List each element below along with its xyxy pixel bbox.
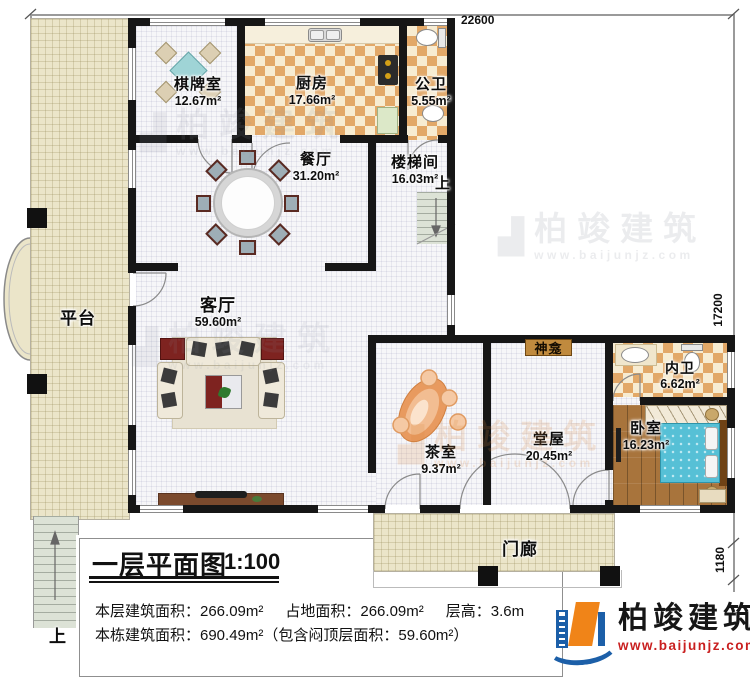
window	[265, 18, 360, 26]
wall	[232, 135, 252, 143]
room-label-platform: 平台	[60, 309, 96, 328]
inner-toilet-tank	[681, 344, 703, 351]
bedroom-tv	[616, 428, 621, 462]
wall	[128, 135, 198, 143]
cushion	[263, 392, 279, 408]
wall	[340, 135, 408, 143]
kitchen-sink	[308, 28, 342, 42]
burner	[385, 60, 391, 66]
room-label-bedroom: 卧室 16.23m²	[623, 421, 670, 452]
drawing-scale: 1:100	[224, 549, 280, 575]
bed-pillow	[705, 427, 718, 450]
toilet	[416, 29, 438, 46]
column	[600, 566, 620, 586]
room-label-public-bath: 公卫 5.55m²	[411, 77, 451, 108]
dining-chair	[239, 240, 256, 255]
wall	[325, 263, 376, 271]
floor-height: 层高：3.6m	[446, 600, 524, 621]
room-label-chess: 棋牌室 12.67m²	[174, 77, 222, 108]
room-label-porch: 门廊	[502, 540, 538, 559]
wall	[420, 505, 460, 513]
sofa-left	[157, 362, 183, 419]
total-area: 本栋建筑面积：690.49m²（包含闷顶层面积：59.60m²）	[95, 624, 468, 645]
toilet-tank	[438, 28, 446, 48]
wall	[368, 143, 376, 263]
window	[128, 345, 136, 425]
cushion	[161, 368, 178, 385]
column	[27, 208, 47, 228]
company-logo: 柏竣建筑 www.baijunjz.com	[548, 596, 750, 660]
refrigerator	[377, 107, 398, 134]
window	[727, 428, 735, 478]
kitchen-stove	[378, 55, 398, 85]
company-logo-text: 柏竣建筑 www.baijunjz.com	[618, 604, 750, 653]
floor-area: 本层建筑面积：266.09m²	[95, 600, 263, 621]
shrine-label: 神龛	[534, 338, 562, 357]
bed-headboard	[719, 420, 727, 486]
window	[727, 352, 735, 388]
dining-chair	[239, 150, 256, 165]
window	[128, 48, 136, 100]
room-label-hall: 堂屋 20.45m²	[526, 432, 573, 463]
wall	[447, 18, 455, 295]
exterior-stairs-up-label: 上	[49, 627, 67, 646]
window	[447, 295, 455, 325]
wall	[128, 188, 136, 273]
cushion	[191, 341, 207, 357]
column	[27, 374, 47, 394]
wall	[368, 505, 385, 513]
area-info-line-2: 本栋建筑面积：690.49m²（包含闷顶层面积：59.60m²）	[95, 624, 468, 645]
window	[150, 18, 225, 26]
wall	[183, 505, 318, 513]
area-info-line-1: 本层建筑面积：266.09m² 占地面积：266.09m² 层高：3.6m	[95, 600, 524, 621]
wall	[399, 26, 407, 140]
column	[478, 566, 498, 586]
wall	[237, 26, 245, 138]
sink-basin	[310, 30, 324, 40]
dresser	[699, 489, 726, 503]
dimension-top: 22600	[461, 13, 494, 27]
window	[140, 505, 183, 513]
dimension-right: 17200	[711, 290, 725, 330]
wall	[700, 505, 735, 513]
wall	[128, 505, 140, 513]
dining-chair	[284, 195, 299, 212]
wall	[640, 397, 727, 405]
company-logo-icon	[548, 596, 610, 660]
burner	[385, 73, 391, 79]
cushion	[239, 341, 256, 358]
wall	[128, 263, 178, 271]
window	[318, 505, 368, 513]
room-label-inner-bath: 内卫 6.62m²	[660, 361, 700, 391]
window	[128, 150, 136, 188]
room-label-dining: 餐厅 31.20m²	[293, 152, 340, 183]
coffee-table	[205, 375, 242, 409]
title-underline	[89, 576, 279, 579]
wall	[368, 343, 376, 473]
title-underline-2	[89, 581, 279, 583]
cushion	[161, 392, 177, 408]
window	[424, 18, 447, 26]
company-name: 柏竣建筑	[618, 604, 750, 634]
window	[640, 505, 700, 513]
stairwell-up-label: 上	[435, 176, 451, 193]
window	[128, 450, 136, 495]
land-area: 占地面积：266.09m²	[285, 600, 423, 621]
wall	[605, 335, 613, 470]
sofa-right	[258, 362, 285, 419]
room-label-living: 客厅 59.60m²	[195, 296, 242, 329]
wall	[570, 505, 606, 513]
wall	[727, 335, 735, 352]
side-table-red	[261, 338, 284, 360]
inner-bath-sink	[621, 347, 649, 363]
wall	[128, 306, 136, 345]
wall	[128, 425, 136, 450]
nightstand	[705, 408, 719, 421]
room-label-tea: 茶室 9.37m²	[421, 445, 461, 476]
porch-floor	[373, 513, 615, 572]
wall	[128, 18, 136, 48]
room-label-kitchen: 厨房 17.66m²	[289, 76, 336, 107]
tv	[195, 491, 247, 498]
console-plant	[252, 496, 262, 502]
dining-table-top	[221, 176, 275, 230]
wall	[483, 343, 491, 505]
cushion	[263, 368, 280, 385]
sink-basin	[326, 30, 340, 40]
floor-plan-canvas: 神龛	[0, 0, 750, 677]
side-table-red	[160, 338, 185, 360]
room-label-stairwell: 楼梯间 16.03m²	[391, 155, 439, 186]
shrine-cabinet: 神龛	[525, 339, 572, 356]
company-url: www.baijunjz.com	[618, 638, 750, 653]
dining-chair	[196, 195, 211, 212]
wall	[605, 500, 613, 513]
dimension-porch: 1180	[713, 543, 727, 577]
wall	[613, 505, 640, 513]
sofa-back	[186, 337, 261, 366]
bed-pillow	[705, 455, 718, 478]
wall	[727, 388, 735, 428]
cushion	[215, 341, 231, 357]
